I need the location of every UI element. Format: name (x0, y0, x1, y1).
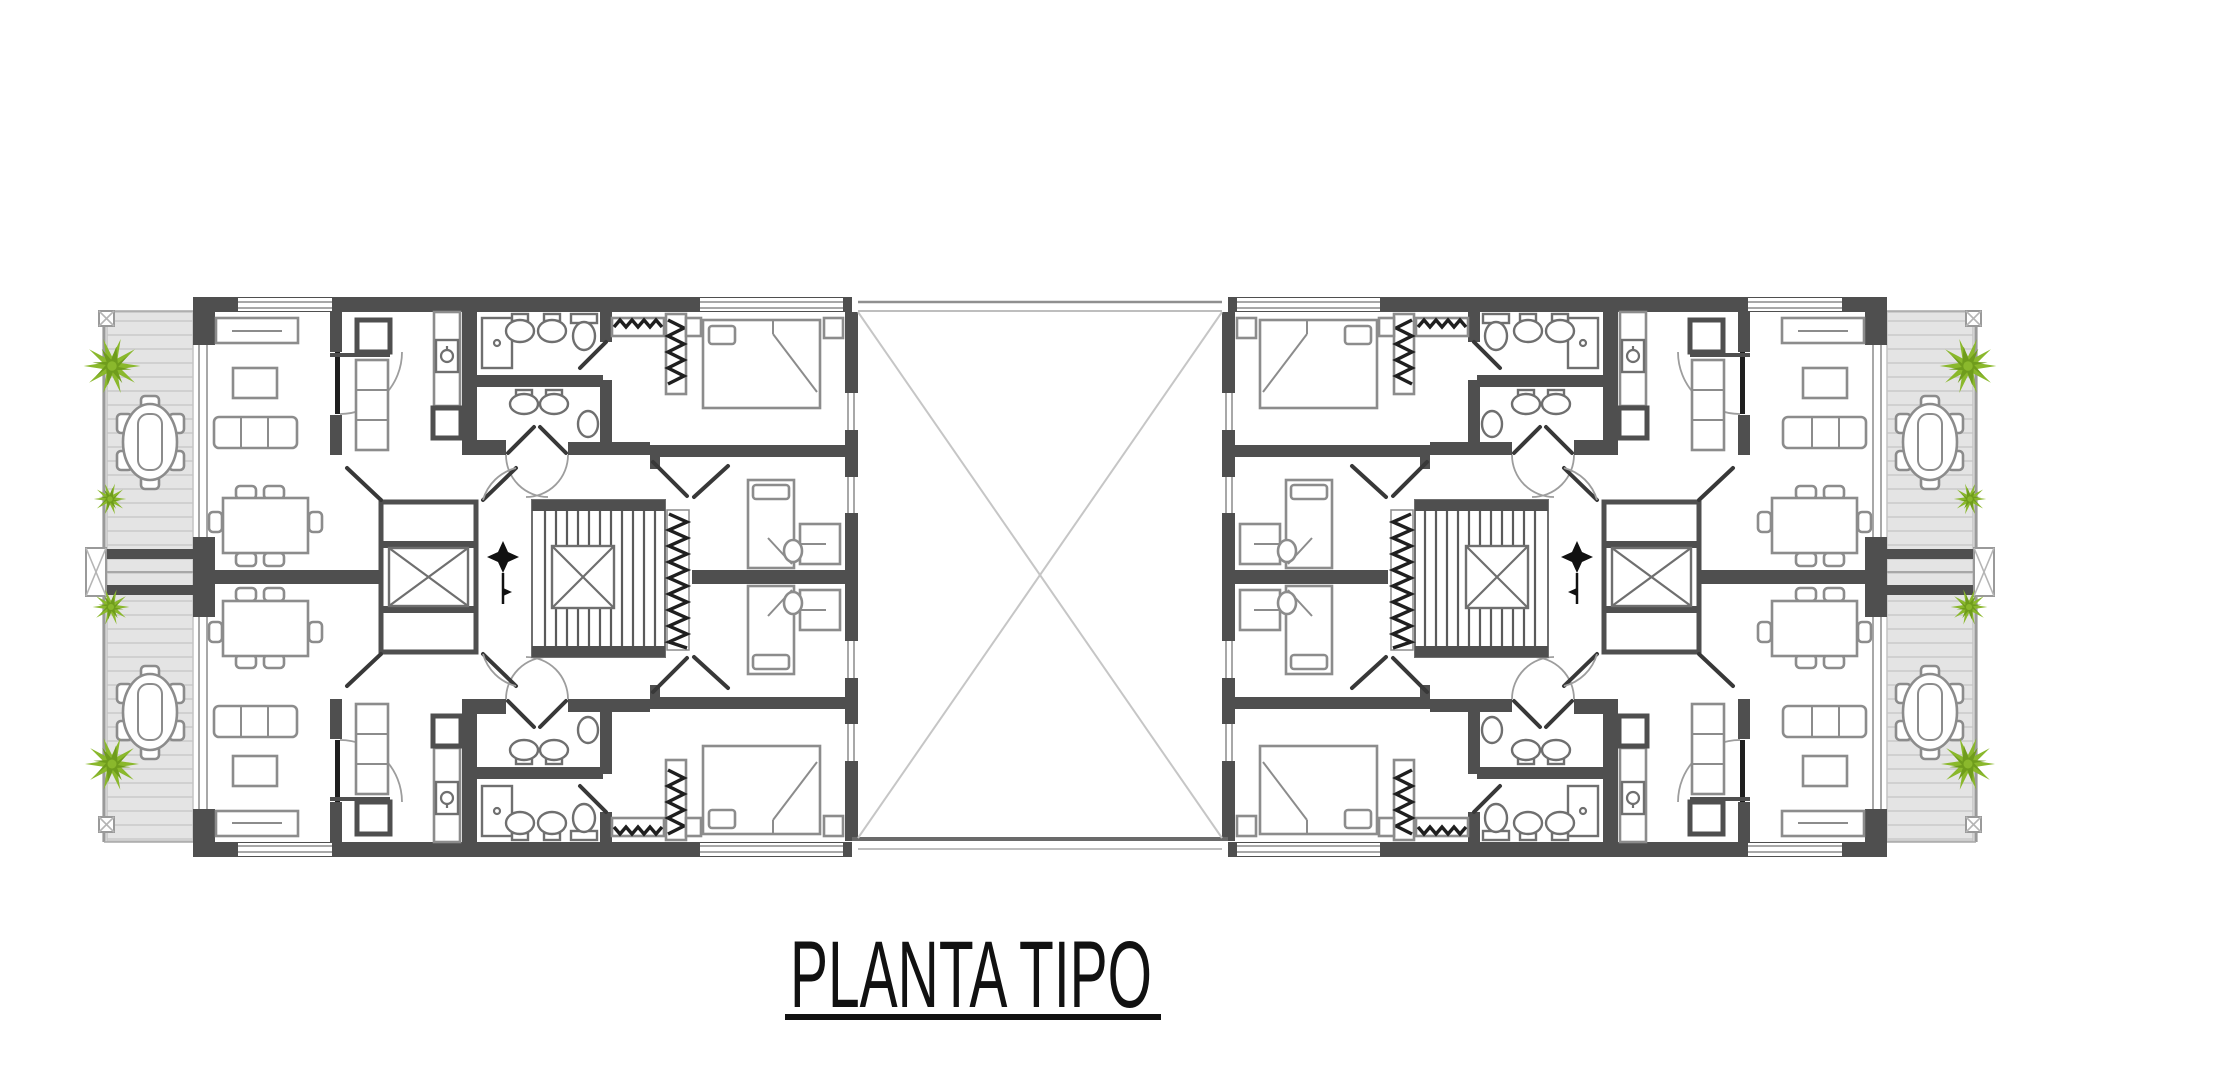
party-wall (215, 570, 845, 584)
elevator-shaft (381, 502, 476, 652)
courtyard-void (852, 302, 1228, 849)
title-underline (785, 1014, 1161, 1020)
sink-icon (436, 340, 458, 372)
terrace-divider (86, 548, 193, 596)
dining-table (209, 486, 322, 566)
upper-apartment (193, 297, 852, 577)
oven-icon (433, 408, 461, 438)
door-leaf (335, 352, 340, 414)
terrace-glazing (193, 297, 215, 577)
north-arrow-icon (487, 541, 519, 604)
wardrobe (612, 314, 686, 394)
staircase (532, 500, 665, 657)
stair-core (347, 466, 728, 688)
bathroom (510, 390, 598, 437)
right-wing (1220, 297, 1996, 857)
plan-title: PLANTA TIPO (790, 922, 1152, 1028)
window (843, 393, 860, 430)
toilet-icon (578, 411, 598, 437)
bathroom (477, 314, 603, 387)
floor-plan-canvas: PLANTA TIPO (0, 0, 2217, 1080)
railing-post-icon (99, 311, 114, 326)
toilet-icon (571, 314, 597, 350)
coffee-table (233, 368, 277, 398)
insulation-hatch (667, 510, 689, 650)
window (700, 298, 843, 311)
lower-apartment (193, 577, 852, 857)
tv-sideboard (216, 318, 298, 343)
window (843, 724, 860, 761)
entry-door (483, 468, 516, 500)
bedroom-bed (686, 318, 843, 408)
floor-plan-page: PLANTA TIPO (0, 0, 2217, 1080)
window (238, 298, 332, 311)
railing-post-icon (99, 817, 114, 832)
window (843, 641, 860, 678)
title-block: PLANTA TIPO (785, 922, 1161, 1028)
window (843, 477, 860, 513)
stair-landing (552, 546, 614, 608)
interior-wall (462, 312, 477, 440)
terrace (84, 311, 193, 842)
interior-wall (650, 445, 852, 457)
sofa (214, 417, 297, 448)
courtyard-wall (843, 312, 860, 841)
left-wing (84, 297, 860, 857)
